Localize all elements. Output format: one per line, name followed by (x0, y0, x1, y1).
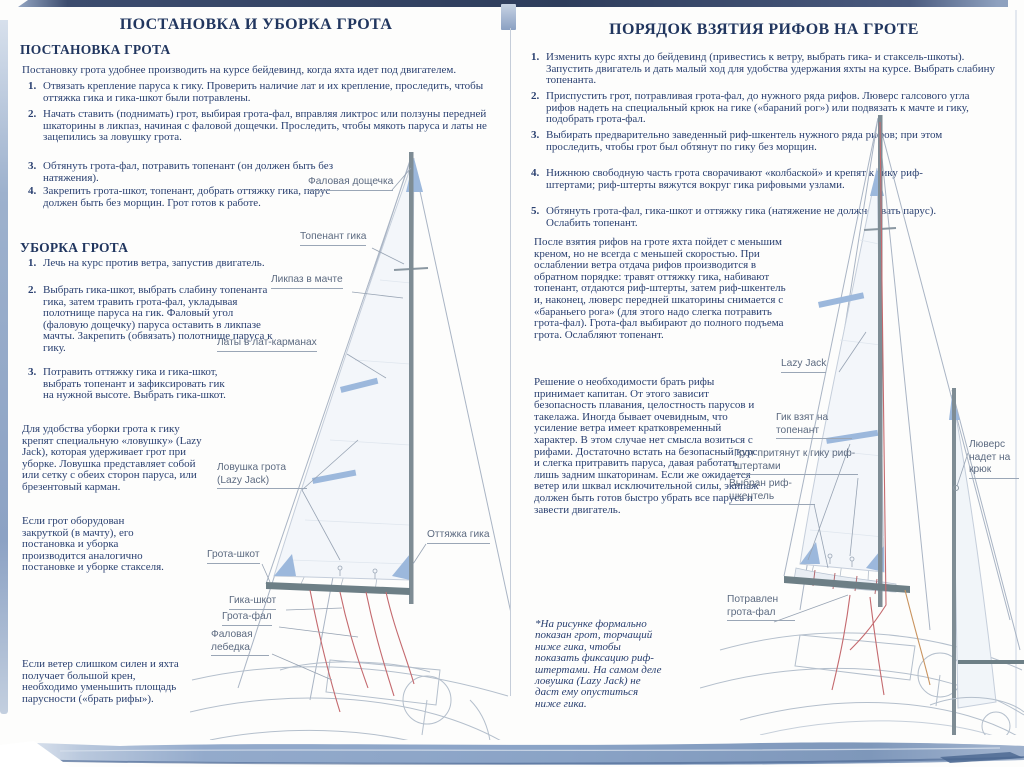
item-text: Начать ставить (поднимать) грот, выбирая… (43, 108, 487, 143)
diagram-label-main-halyard: Грота-фал (222, 611, 272, 626)
bottom-wave (0, 733, 1024, 767)
diagram-label-cringle-hook: Люверс надет на крюк (969, 439, 1019, 479)
item-number: 5. (531, 206, 546, 218)
footnote: *На рисунке формально показан грот, торч… (535, 619, 663, 710)
diagram-label-lazy-jack: Lazy Jack (781, 358, 826, 373)
item-text: Изменить курс яхты до бейдевинд (привест… (546, 51, 995, 86)
diagram-label-reef-points: Грот притянут к гику риф-штертами (734, 448, 858, 475)
intro-text: Постановку грота удобнее производить на … (22, 65, 500, 77)
hull-sketch (190, 660, 510, 740)
paragraph: Если грот оборудован закруткой (в мачту)… (22, 516, 164, 574)
sailboat-diagram-right (700, 90, 1024, 735)
page-title-left: ПОСТАНОВКА И УБОРКА ГРОТА (0, 16, 512, 34)
item-number: 3. (28, 367, 43, 379)
diagram-label-eased-halyard: Потравлен грота-фал (727, 594, 795, 621)
item-text: Отвязать крепление паруса к гику. Провер… (43, 80, 483, 104)
book-spread: ПОСТАНОВКА И УБОРКА ГРОТА ПОСТАНОВКА ГРО… (0, 0, 1024, 767)
mast (409, 152, 414, 604)
diagram-label-mast-groove: Ликпаз в мачте (271, 274, 343, 289)
diagram-label-topping-lift: Топенант гика (300, 231, 366, 246)
boom (266, 582, 410, 595)
item-number: 3. (28, 161, 43, 173)
item-number: 2. (531, 91, 546, 103)
page-title-right: ПОРЯДОК ВЗЯТИЯ РИФОВ НА ГРОТЕ (518, 21, 1010, 39)
diagram-label-halyard-winch: Фаловая лебедка (211, 629, 269, 656)
list-item: 1.Отвязать крепление паруса к гику. Пров… (28, 81, 519, 104)
diagram-label-battens: Латы в лат-карманах (217, 337, 317, 352)
diagram-label-boom-on-lift: Гик взят на топенант (776, 412, 852, 439)
diagram-label-lazy-jack: Ловушка грота (Lazy Jack) (217, 462, 307, 489)
section-heading-setting: ПОСТАНОВКА ГРОТА (20, 42, 170, 58)
item-number: 4. (28, 186, 43, 198)
item-number: 3. (531, 130, 546, 142)
diagram-label-boom-sheet: Гика-шкот (229, 595, 276, 610)
mast (878, 115, 883, 607)
left-edge-band (0, 20, 8, 714)
item-number: 2. (28, 285, 43, 297)
paragraph: Если ветер слишком силен и яхта получает… (22, 659, 180, 705)
diagram-label-reef-pendant: Выбран риф-шкентель (729, 478, 815, 505)
diagram-label-mainsheet: Грота-шкот (207, 549, 260, 564)
item-number: 2. (28, 109, 43, 121)
item-number: 4. (531, 168, 546, 180)
diagram-label-boom-vang: Оттяжка гика (427, 529, 490, 544)
item-number: 1. (531, 52, 546, 64)
paragraph: Для удобства уборки грота к гику крепят … (22, 424, 206, 494)
section-heading-stowing: УБОРКА ГРОТА (20, 240, 128, 256)
list-item: 2.Начать ставить (поднимать) грот, выбир… (28, 109, 519, 144)
item-number: 1. (28, 81, 43, 93)
item-number: 1. (28, 258, 43, 270)
list-item: 1.Изменить курс яхты до бейдевинд (приве… (531, 52, 1001, 87)
mainsail (274, 158, 414, 580)
diagram-label-headboard: Фаловая дощечка (308, 176, 393, 191)
